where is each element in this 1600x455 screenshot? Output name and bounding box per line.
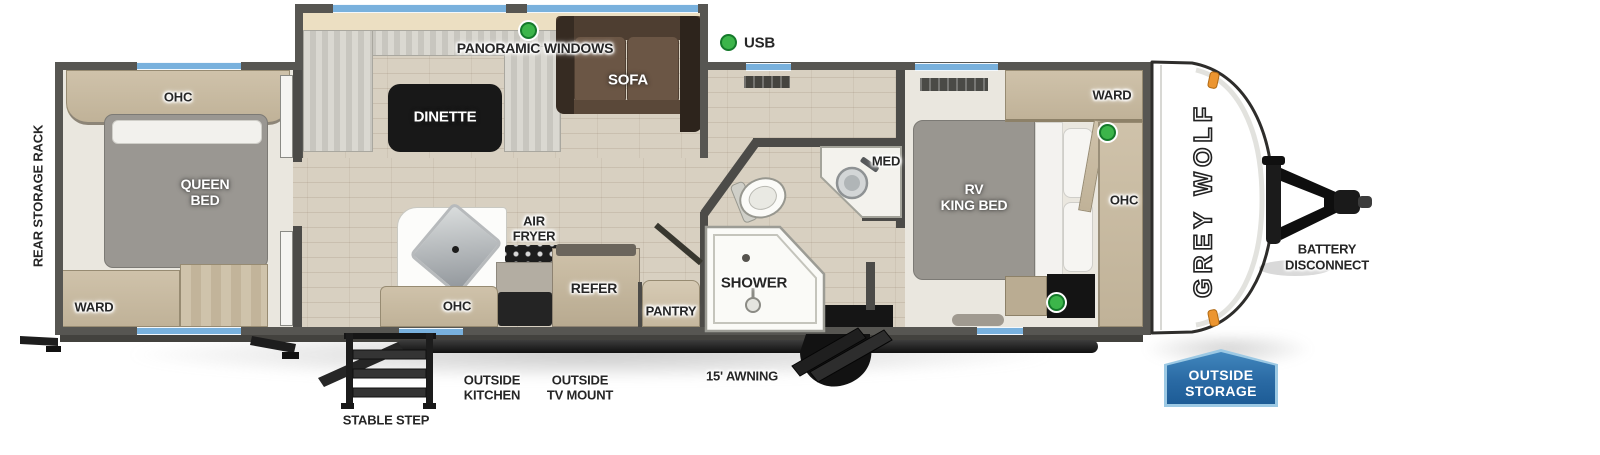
outside-storage-label-line1: OUTSIDE [1188,367,1253,383]
dinette-label: DINETTE [414,110,477,125]
outside-tv-mount-label-line1: OUTSIDE [552,374,608,387]
outside-kitchen-label-line2: KITCHEN [464,389,520,402]
front-ward-label: WARD [1093,89,1132,102]
rear-ward-label: WARD [75,301,114,314]
king-bed-label-line1: RV [965,182,984,196]
panoramic-windows-label: PANORAMIC WINDOWS [457,41,614,55]
outside-storage-label-line2: STORAGE [1185,383,1257,399]
usb-indicator-icon [520,22,537,39]
usb-indicator-icon [1099,124,1116,141]
outside-tv-mount-label-line2: TV MOUNT [547,389,613,402]
awning-arm [318,342,404,387]
usb-indicator-icon [720,34,737,51]
overlay-graphics [0,0,1600,455]
front-ohc-label: OHC [1110,194,1138,207]
badge-inner: OUTSIDE STORAGE [1167,352,1275,404]
shower-label: SHOWER [721,276,787,291]
rear-ohc-label: OHC [164,91,192,104]
toilet-icon [730,168,791,225]
battery-disconnect-label-line2: DISCONNECT [1285,259,1369,272]
bathroom-door-swing [656,225,701,263]
air-fryer-label-line2: FRYER [513,230,556,243]
air-fryer-label-line1: AIR [523,215,545,228]
stable-step-ladder [341,333,436,409]
usb-indicator-icon [1048,294,1065,311]
queen-bed-label-line2: BED [191,193,220,207]
stable-step-label: STABLE STEP [343,414,429,427]
floor-plan: OUTSIDE STORAGE GREY WOLF REAR STORAGE R… [0,0,1600,455]
med-label: MED [872,155,900,168]
king-bed-label-line2: KING BED [941,198,1008,212]
usb-label: USB [744,36,775,51]
brand-logo: GREY WOLF [1190,102,1219,298]
kitchen-ohc-label: OHC [443,300,471,313]
outside-kitchen-label-line1: OUTSIDE [464,374,520,387]
battery-disconnect-label-line1: BATTERY [1298,243,1357,256]
sofa-label: SOFA [608,73,648,88]
entry-steps [792,328,892,387]
rear-storage-rack-label: REAR STORAGE RACK [32,125,45,267]
refer-label: REFER [571,281,617,295]
stabilizer-jack [20,336,299,359]
pantry-label: PANTRY [646,305,697,318]
queen-bed-label-line1: QUEEN [181,177,230,191]
awning-label: 15' AWNING [706,370,778,383]
